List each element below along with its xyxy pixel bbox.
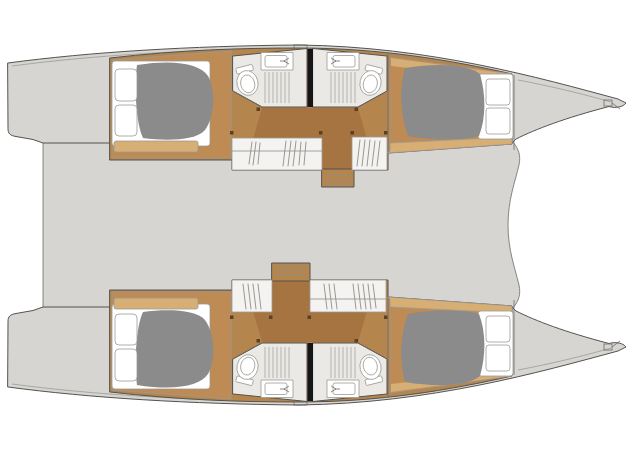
boat-layout-plan xyxy=(0,0,630,450)
floor-plan-svg xyxy=(0,0,630,450)
wardrobe-small xyxy=(232,280,272,312)
companionway-steps xyxy=(272,263,310,281)
companionway-steps xyxy=(322,169,354,187)
wardrobe-large xyxy=(232,138,322,170)
